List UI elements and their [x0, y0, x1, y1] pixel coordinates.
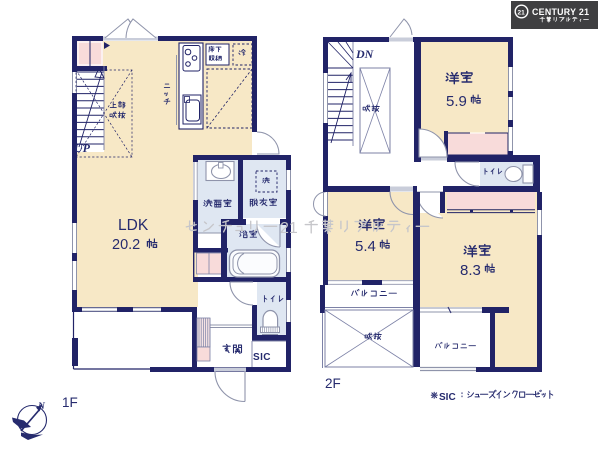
svg-text:2F: 2F	[325, 376, 341, 391]
svg-text:20.2: 20.2	[112, 237, 140, 253]
svg-text:8.3: 8.3	[460, 262, 481, 279]
svg-text:SIC: SIC	[439, 392, 456, 403]
svg-text:21: 21	[280, 220, 298, 237]
svg-text:LDK: LDK	[118, 217, 149, 234]
svg-text:SIC: SIC	[253, 352, 271, 363]
svg-text:5.4: 5.4	[355, 238, 376, 255]
svg-text:5.9: 5.9	[446, 93, 467, 110]
svg-text:1F: 1F	[62, 395, 78, 410]
svg-text:UP: UP	[74, 141, 91, 155]
svg-text:CENTURY 21: CENTURY 21	[532, 7, 589, 17]
svg-text:21: 21	[518, 10, 526, 17]
svg-text:N: N	[37, 402, 46, 412]
svg-text:DN: DN	[355, 47, 375, 61]
